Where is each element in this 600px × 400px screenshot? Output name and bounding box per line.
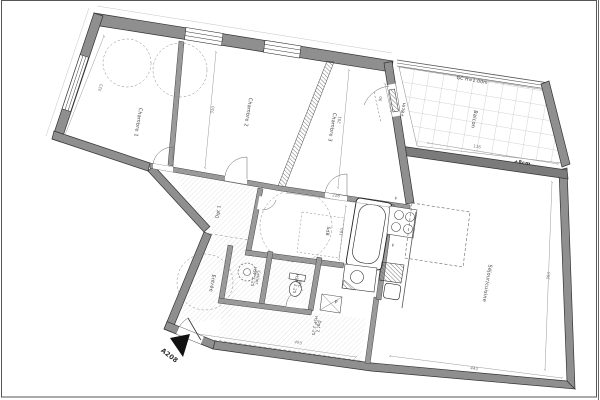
window-chambre2-top-2 [264, 40, 302, 58]
placard-icon [320, 294, 342, 313]
door-arc-chambre3 [325, 174, 347, 193]
balcony [397, 60, 561, 163]
door-arc-sdb [262, 200, 276, 210]
door-arc-chambre2 [225, 157, 247, 176]
stove-icon [387, 206, 417, 238]
floor-plan-drawing [0, 0, 600, 400]
window-chambre2-top [185, 28, 224, 46]
entrance-triangle [170, 334, 190, 357]
door-arc-balcony [364, 86, 389, 105]
bathroom-sink-icon [342, 264, 377, 292]
window-chambre1-left [62, 55, 89, 112]
shower-zone-outline [297, 212, 344, 258]
floor-plan-canvas: Chambre 1Chambre 2Chambre 3BalconSéjour/… [0, 0, 600, 400]
